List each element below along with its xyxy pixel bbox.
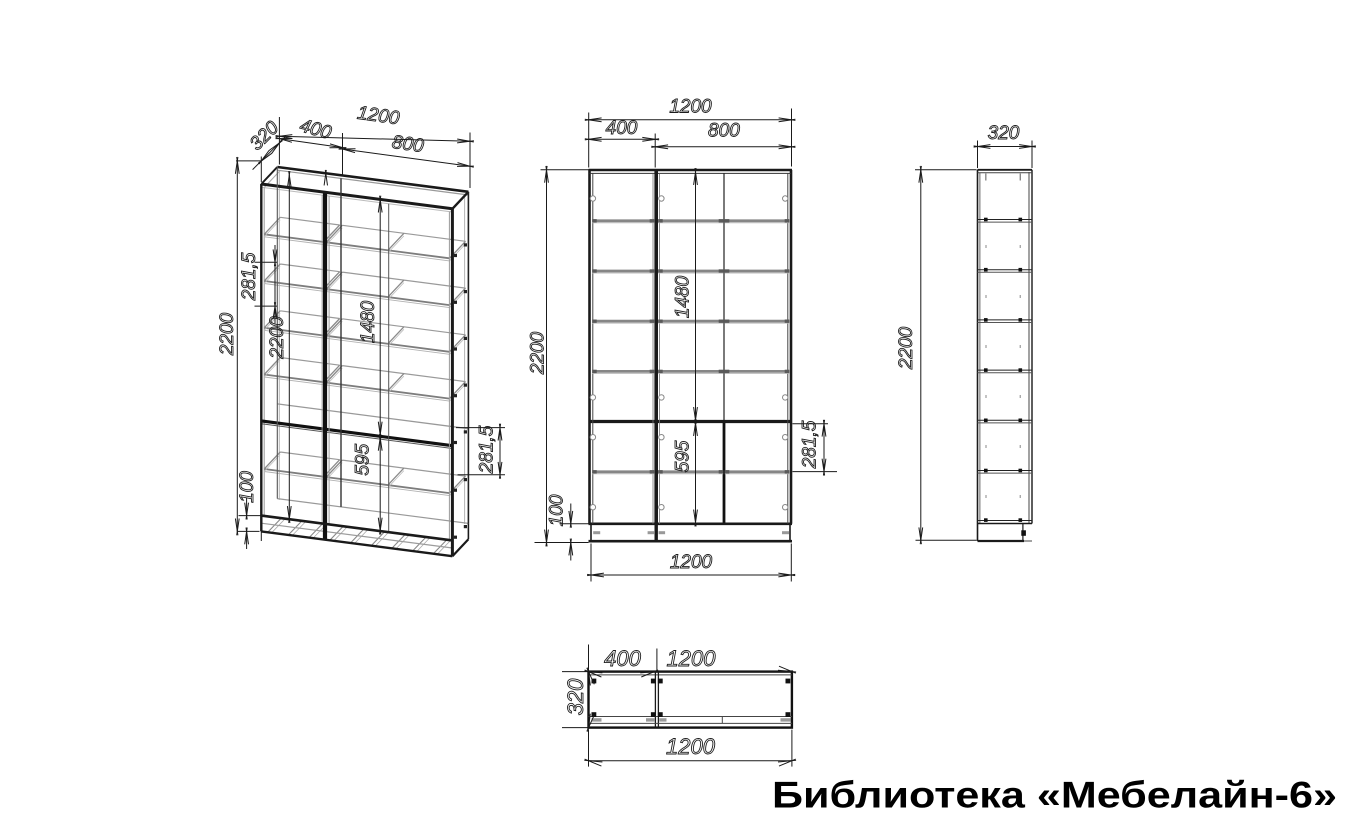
svg-text:2200: 2200 (528, 331, 549, 375)
svg-text:100: 100 (547, 494, 568, 526)
svg-text:2200: 2200 (896, 326, 917, 370)
svg-text:320: 320 (563, 678, 588, 715)
svg-text:281,5: 281,5 (239, 252, 260, 301)
svg-text:1480: 1480 (358, 300, 379, 343)
svg-text:281,5: 281,5 (800, 420, 821, 469)
svg-text:400: 400 (606, 118, 638, 139)
svg-text:281,5: 281,5 (477, 425, 498, 474)
svg-text:800: 800 (391, 132, 426, 157)
svg-text:595: 595 (353, 444, 374, 476)
svg-text:2200: 2200 (267, 316, 288, 360)
svg-text:595: 595 (673, 440, 694, 472)
svg-text:320: 320 (988, 123, 1020, 144)
svg-text:Библиотека «Мебелайн-6»: Библиотека «Мебелайн-6» (772, 775, 1337, 815)
svg-text:1200: 1200 (669, 97, 712, 118)
svg-text:2200: 2200 (217, 312, 238, 356)
svg-text:1200: 1200 (667, 646, 717, 671)
svg-text:100: 100 (237, 471, 258, 503)
svg-text:800: 800 (708, 121, 740, 142)
svg-text:1480: 1480 (673, 275, 694, 318)
svg-text:1200: 1200 (666, 734, 716, 759)
svg-text:1200: 1200 (670, 552, 713, 573)
svg-text:400: 400 (604, 646, 641, 671)
